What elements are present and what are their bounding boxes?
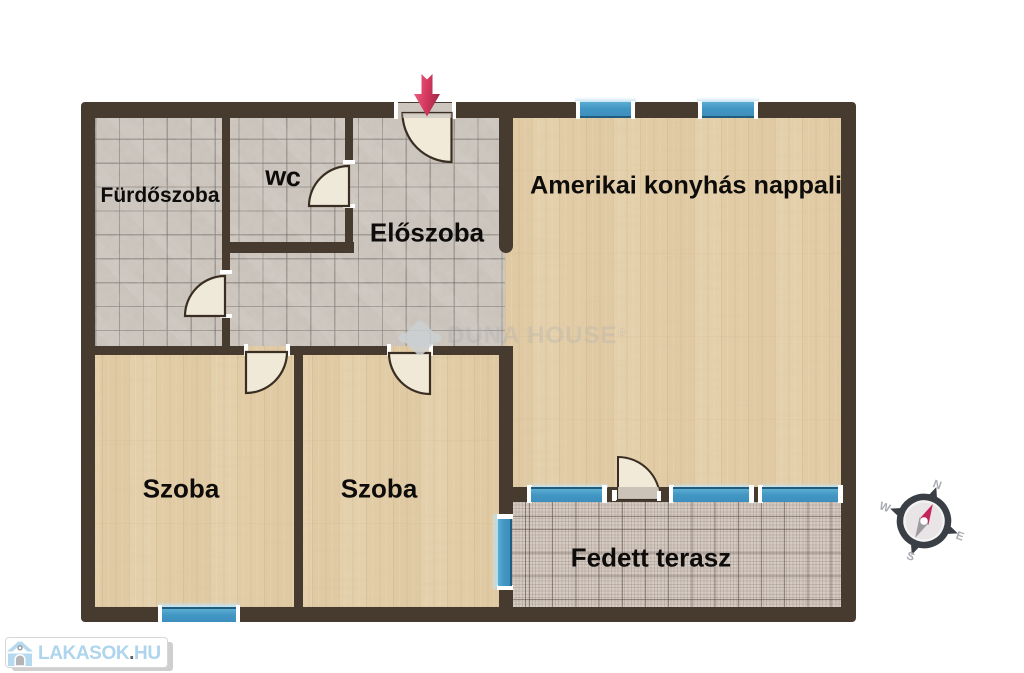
svg-text:W: W (878, 500, 892, 515)
svg-text:S: S (905, 550, 917, 564)
svg-text:N: N (931, 478, 943, 492)
